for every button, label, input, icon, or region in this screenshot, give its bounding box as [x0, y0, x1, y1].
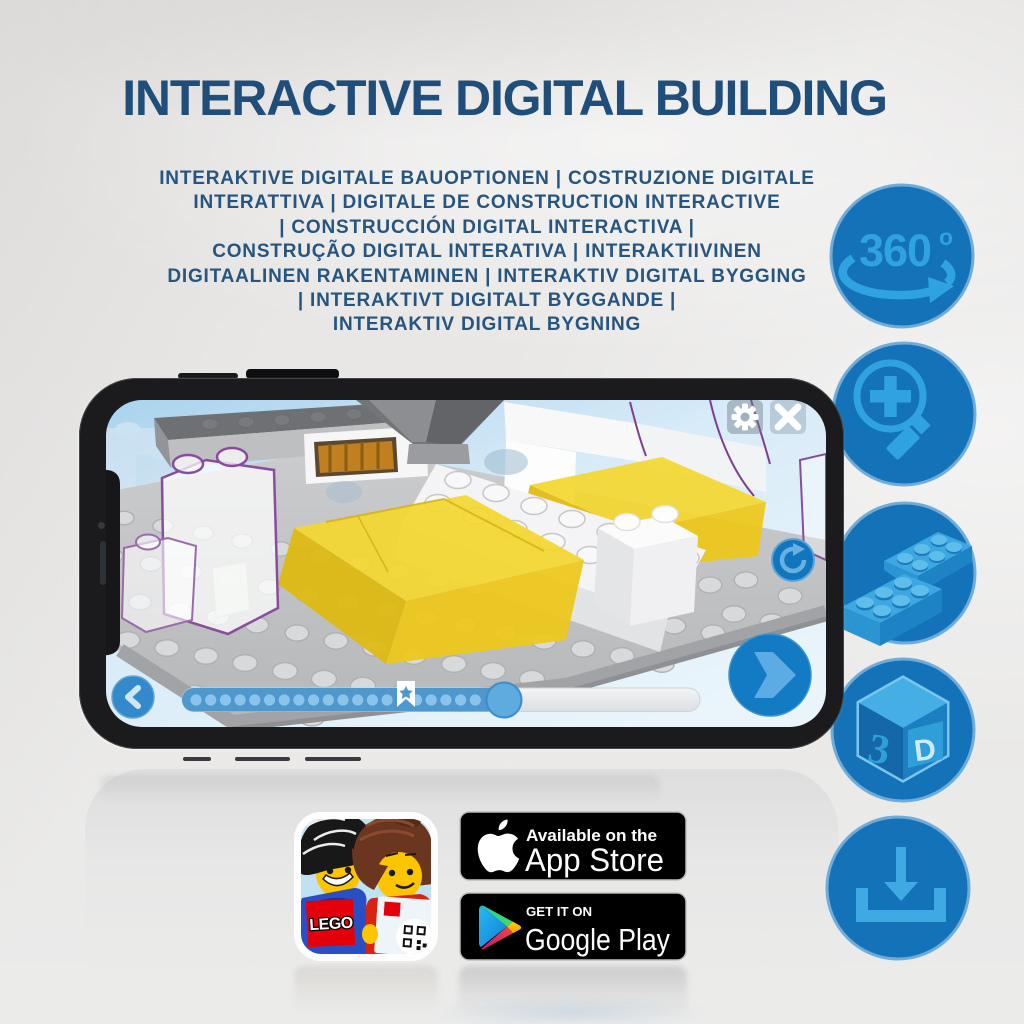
svg-text:App Store: App Store: [525, 842, 664, 878]
svg-text:Google Play: Google Play: [525, 922, 670, 957]
svg-text:GET IT ON: GET IT ON: [526, 904, 592, 919]
svg-text:D: D: [912, 733, 938, 768]
svg-text:LEGO: LEGO: [309, 915, 353, 934]
svg-text:o: o: [939, 224, 953, 250]
svg-text:360: 360: [859, 225, 931, 276]
